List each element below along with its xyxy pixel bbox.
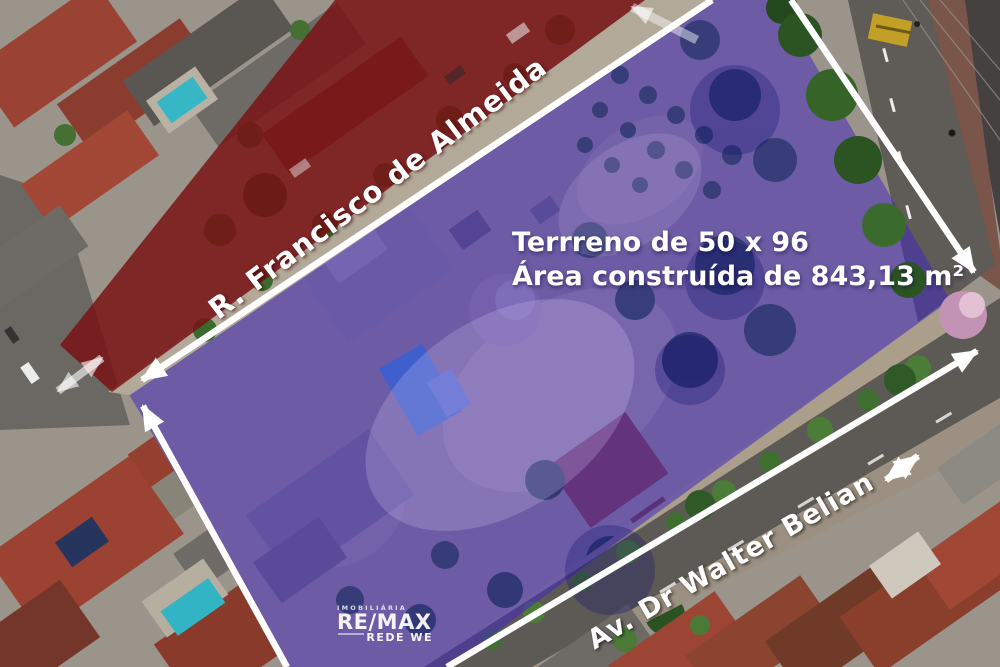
logo-sector-label: IMOBILIÁRIA [337,604,447,612]
motorcycle [914,21,920,27]
remax-logo: IMOBILIÁRIA RE/MAX REDE WE [337,604,447,644]
motorcycle [949,130,956,137]
logo-brand: RE/MAX [337,612,447,632]
terrain-dimensions: Terrreno de 50 x 96 [512,226,964,260]
built-area: Área construída de 843,13 m² [512,260,964,294]
property-info-text: Terrreno de 50 x 96 Área construída de 8… [512,226,964,294]
aerial-photo: R. Francisco de Almeida Terrreno de 50 x… [0,0,1000,667]
